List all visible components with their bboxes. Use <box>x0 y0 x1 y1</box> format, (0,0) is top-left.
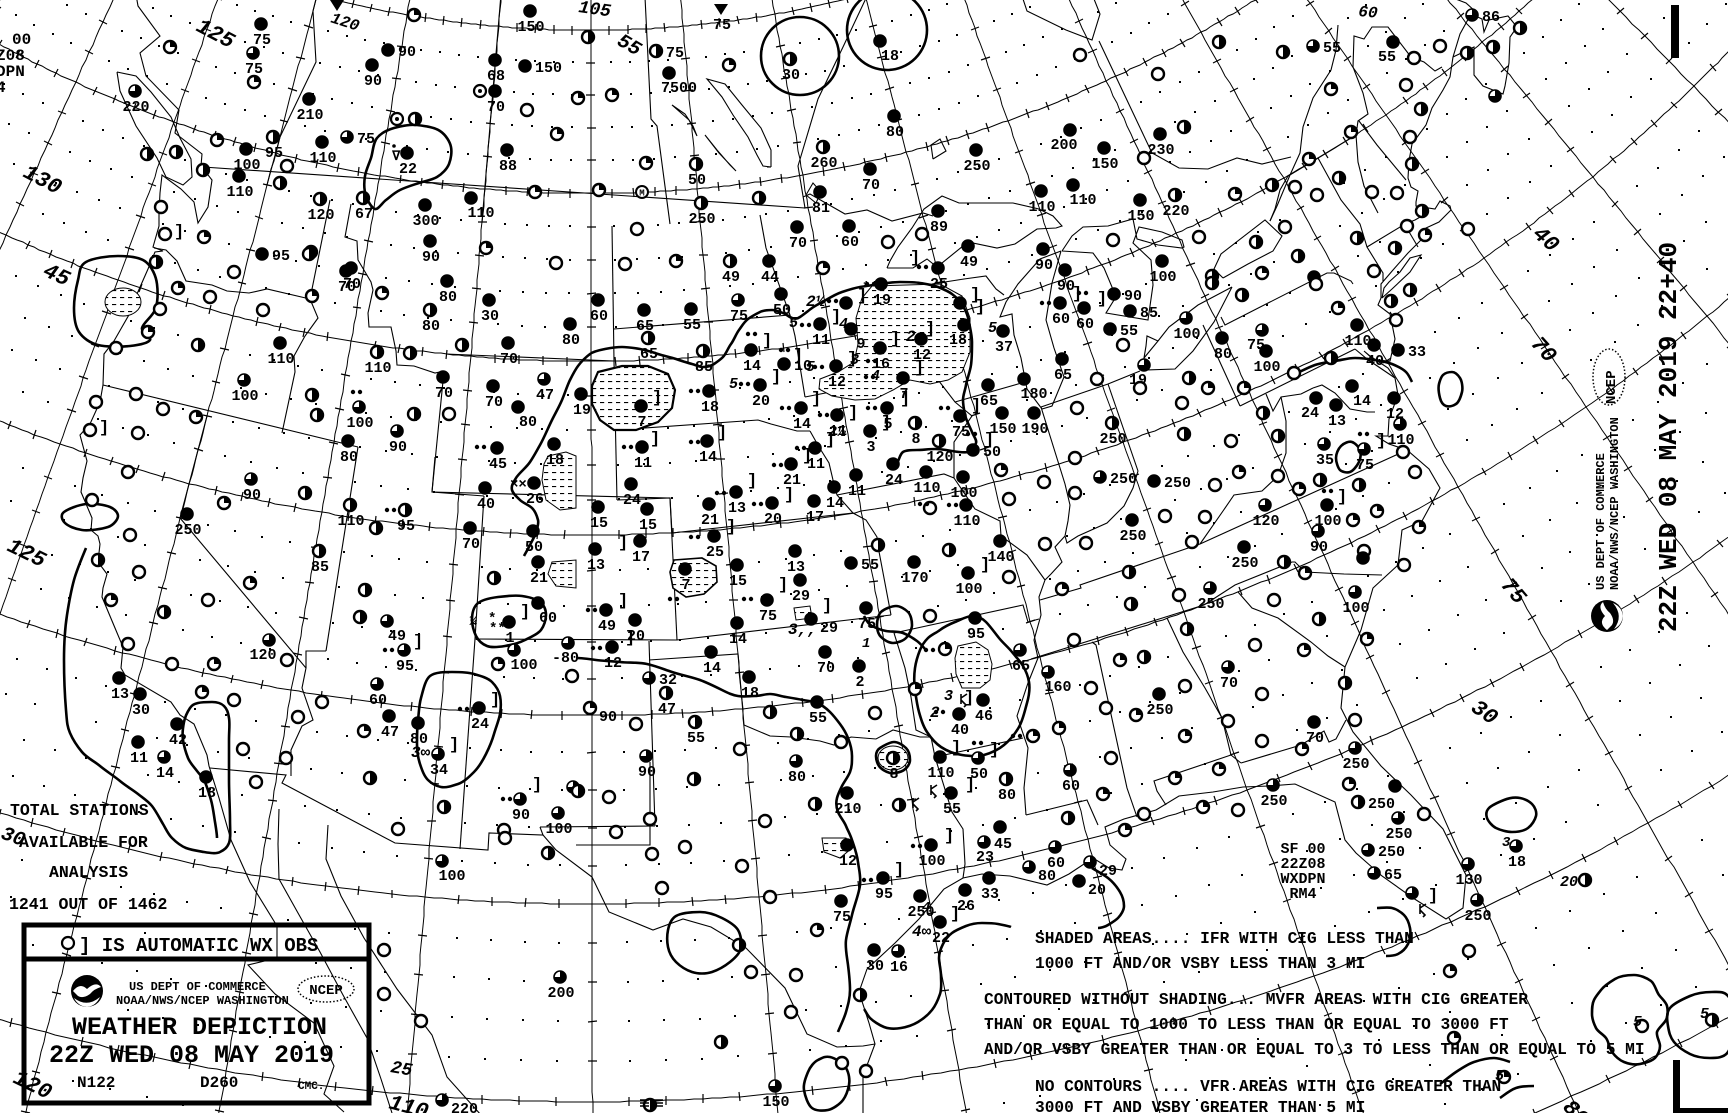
svg-text:90: 90 <box>243 487 261 504</box>
svg-text:]: ] <box>811 390 821 409</box>
svg-text:12: 12 <box>839 853 857 870</box>
svg-text:150: 150 <box>517 19 544 36</box>
svg-text:220: 220 <box>1162 203 1189 220</box>
svg-text:220: 220 <box>122 99 149 116</box>
svg-text:]: ] <box>174 223 184 242</box>
svg-text:]: ] <box>848 404 858 423</box>
svg-text:US DEPT OF COMMERCE: US DEPT OF COMMERCE <box>129 980 266 994</box>
svg-text:M: M <box>639 189 644 199</box>
svg-text:3∞: 3∞ <box>411 744 431 762</box>
svg-text:230: 230 <box>1147 142 1174 159</box>
svg-text:23: 23 <box>976 849 994 866</box>
svg-text:]: ] <box>822 597 832 616</box>
svg-text:60: 60 <box>841 234 859 251</box>
svg-text:20: 20 <box>752 393 770 410</box>
svg-text:]: ] <box>980 556 990 575</box>
svg-text:88: 88 <box>499 158 517 175</box>
svg-text:210: 210 <box>834 801 861 818</box>
svg-text:]: ] <box>975 298 985 317</box>
svg-text:14: 14 <box>793 416 811 433</box>
svg-text:55: 55 <box>683 317 701 334</box>
svg-text:24: 24 <box>471 716 489 733</box>
svg-text:220: 220 <box>451 1101 478 1113</box>
svg-text:2½: 2½ <box>828 424 846 441</box>
svg-text:44: 44 <box>761 269 779 286</box>
svg-text:250: 250 <box>963 158 990 175</box>
svg-text:86: 86 <box>1482 9 1500 26</box>
svg-text:49: 49 <box>722 269 740 286</box>
svg-text:100: 100 <box>950 485 977 502</box>
svg-text:]: ] <box>1072 285 1082 304</box>
svg-text:14: 14 <box>699 449 717 466</box>
svg-text:46: 46 <box>975 708 993 725</box>
svg-text:90: 90 <box>398 44 416 61</box>
svg-text:RM4: RM4 <box>1289 886 1316 903</box>
svg-text:**: ** <box>862 280 879 296</box>
svg-text:70: 70 <box>862 177 880 194</box>
svg-text:250: 250 <box>1197 596 1224 613</box>
svg-text:130: 130 <box>1455 872 1482 889</box>
svg-text:70: 70 <box>817 660 835 677</box>
svg-text:70: 70 <box>1306 730 1324 747</box>
svg-text:250: 250 <box>1099 431 1126 448</box>
svg-text:250: 250 <box>1368 796 1395 813</box>
svg-text:15: 15 <box>639 517 657 534</box>
svg-text:N122: N122 <box>77 1074 115 1092</box>
svg-text:14: 14 <box>743 358 761 375</box>
svg-text:15: 15 <box>590 515 608 532</box>
svg-text:CMC.: CMC. <box>298 1081 324 1093</box>
svg-text:]: ] <box>726 518 736 537</box>
svg-text:80: 80 <box>998 787 1016 804</box>
svg-text:14: 14 <box>156 765 174 782</box>
svg-text:]: ] <box>771 368 781 387</box>
svg-text:70: 70 <box>487 99 505 116</box>
svg-text:55: 55 <box>1120 323 1138 340</box>
svg-text:18: 18 <box>701 399 719 416</box>
svg-text:4: 4 <box>839 316 848 333</box>
svg-text:35: 35 <box>1316 452 1334 469</box>
svg-text:]: ] <box>762 332 772 351</box>
svg-text:14: 14 <box>729 631 747 648</box>
svg-text:13: 13 <box>787 559 805 576</box>
svg-text:110: 110 <box>1028 199 1055 216</box>
svg-text:20: 20 <box>764 511 782 528</box>
svg-text:60: 60 <box>369 692 387 709</box>
svg-text:110: 110 <box>1344 333 1371 350</box>
svg-text:22: 22 <box>932 930 950 947</box>
svg-text:95: 95 <box>272 248 290 265</box>
svg-text:9: 9 <box>856 336 865 353</box>
svg-text:NOAA/NWS/NCEP WASHINGTON: NOAA/NWS/NCEP WASHINGTON <box>116 994 289 1008</box>
svg-text:13: 13 <box>728 500 746 517</box>
svg-text:]: ] <box>965 776 975 795</box>
svg-text:19: 19 <box>573 402 591 419</box>
svg-text:]: ] <box>520 603 530 622</box>
svg-text:75: 75 <box>833 909 851 926</box>
svg-text:250: 250 <box>1385 826 1412 843</box>
svg-text:34: 34 <box>430 762 448 779</box>
svg-text:250: 250 <box>174 522 201 539</box>
svg-text:49: 49 <box>960 254 978 271</box>
svg-text:110: 110 <box>309 150 336 167</box>
svg-text:40: 40 <box>951 722 969 739</box>
svg-text:100: 100 <box>545 821 572 838</box>
svg-text:18: 18 <box>949 332 967 349</box>
svg-text:25: 25 <box>389 1058 414 1081</box>
svg-text:100: 100 <box>1342 600 1369 617</box>
svg-text:45: 45 <box>489 456 507 473</box>
svg-text:30: 30 <box>132 702 150 719</box>
svg-text:25: 25 <box>706 544 724 561</box>
svg-text:15: 15 <box>729 573 747 590</box>
svg-text:11: 11 <box>634 455 652 472</box>
svg-text:14: 14 <box>826 495 844 512</box>
svg-text:]: ] <box>650 430 660 449</box>
svg-text:1000 FT AND/OR VSBY LESS THAN: 1000 FT AND/OR VSBY LESS THAN 3 MI <box>1035 955 1365 973</box>
svg-text:250: 250 <box>1231 555 1258 572</box>
svg-text:80: 80 <box>422 318 440 335</box>
svg-text:95: 95 <box>875 886 893 903</box>
svg-text:47: 47 <box>381 724 399 741</box>
svg-text:37: 37 <box>995 339 1013 356</box>
svg-text:80: 80 <box>886 124 904 141</box>
svg-text:100: 100 <box>231 388 258 405</box>
svg-text:110: 110 <box>267 351 294 368</box>
svg-text:40: 40 <box>1366 353 1384 370</box>
svg-text:150: 150 <box>762 1094 789 1111</box>
svg-text:110: 110 <box>364 360 391 377</box>
svg-text:250: 250 <box>1164 475 1191 492</box>
svg-text:∇: ∇ <box>391 149 401 165</box>
svg-text:100: 100 <box>346 415 373 432</box>
svg-text:11: 11 <box>848 483 866 500</box>
svg-text:30: 30 <box>782 67 800 84</box>
svg-text:THAN OR EQUAL TO 1000 TO LESS: THAN OR EQUAL TO 1000 TO LESS THAN OR EQ… <box>984 1016 1509 1034</box>
svg-text:24: 24 <box>623 492 641 509</box>
svg-text:150: 150 <box>1091 156 1118 173</box>
svg-text:]: ] <box>1376 432 1386 451</box>
svg-text:2½: 2½ <box>806 293 826 311</box>
svg-text:]: ] <box>625 629 635 648</box>
svg-text:100: 100 <box>955 581 982 598</box>
svg-text:] IS AUTOMATIC WX OBS: ] IS AUTOMATIC WX OBS <box>79 935 318 957</box>
svg-text:68: 68 <box>487 68 505 85</box>
svg-text:120: 120 <box>249 647 276 664</box>
svg-text:]: ] <box>449 736 459 755</box>
svg-text:NO CONTOURS .... VFR AREAS WIT: NO CONTOURS .... VFR AREAS WITH CIG GREA… <box>1035 1078 1501 1096</box>
svg-text:4: 4 <box>0 79 6 97</box>
svg-text:49: 49 <box>598 618 616 635</box>
svg-text:7: 7 <box>681 577 690 594</box>
svg-text:TOTAL STATIONS: TOTAL STATIONS <box>10 801 149 820</box>
svg-text:110: 110 <box>226 184 253 201</box>
svg-text:40: 40 <box>477 496 495 513</box>
svg-text:20: 20 <box>1088 882 1106 899</box>
svg-text:]: ] <box>652 389 662 408</box>
svg-text:-80: -80 <box>552 650 579 667</box>
svg-text:110: 110 <box>467 205 494 222</box>
svg-text:250: 250 <box>1260 793 1287 810</box>
svg-text:4: 4 <box>922 900 930 916</box>
svg-text:29: 29 <box>820 620 838 637</box>
svg-text:260: 260 <box>810 155 837 172</box>
svg-text:75: 75 <box>858 616 876 633</box>
svg-text:17: 17 <box>632 549 650 566</box>
svg-text:16: 16 <box>890 959 908 976</box>
svg-text:NCEP: NCEP <box>1604 370 1620 404</box>
svg-text:11: 11 <box>812 332 830 349</box>
svg-text:××: ×× <box>510 477 527 493</box>
svg-text:47: 47 <box>658 701 676 718</box>
svg-text:24: 24 <box>885 472 903 489</box>
svg-text:100: 100 <box>438 868 465 885</box>
svg-text:90: 90 <box>364 73 382 90</box>
svg-text:]: ] <box>99 419 109 438</box>
svg-text:90: 90 <box>1124 288 1142 305</box>
svg-text:13: 13 <box>1328 413 1346 430</box>
svg-text:]: ] <box>944 827 954 846</box>
svg-text:90: 90 <box>422 249 440 266</box>
svg-text:60: 60 <box>1358 3 1379 23</box>
svg-text:81: 81 <box>812 200 830 217</box>
svg-text:]: ] <box>717 424 727 443</box>
svg-text:60: 60 <box>1062 778 1080 795</box>
svg-text:250: 250 <box>1342 756 1369 773</box>
svg-text:12: 12 <box>604 655 622 672</box>
svg-text:US DEPT OF COMMERCE: US DEPT OF COMMERCE <box>1594 453 1608 590</box>
svg-text:100: 100 <box>510 657 537 674</box>
svg-text:55: 55 <box>1323 40 1341 57</box>
svg-text:55: 55 <box>687 730 705 747</box>
svg-text:85: 85 <box>311 559 329 576</box>
svg-text:65: 65 <box>1054 367 1072 384</box>
svg-text:90: 90 <box>512 807 530 824</box>
svg-text:50: 50 <box>688 172 706 189</box>
svg-text:33: 33 <box>1408 344 1426 361</box>
svg-text:ANALYSIS: ANALYSIS <box>49 863 128 882</box>
svg-text:22Z WED 08 MAY 2019: 22Z WED 08 MAY 2019 <box>49 1041 334 1070</box>
svg-text:190: 190 <box>1021 421 1048 438</box>
svg-text:WEATHER DEPICTION: WEATHER DEPICTION <box>72 1013 327 1042</box>
svg-text:CONTOURED WITHOUT SHADING... M: CONTOURED WITHOUT SHADING... MVFR AREAS … <box>984 991 1528 1009</box>
svg-text:AVAILABLE FOR: AVAILABLE FOR <box>19 833 148 852</box>
svg-text:120: 120 <box>1252 513 1279 530</box>
svg-text:90: 90 <box>1035 257 1053 274</box>
svg-text:95: 95 <box>265 145 283 162</box>
svg-text:250: 250 <box>1378 844 1405 861</box>
svg-text:90: 90 <box>1310 539 1328 556</box>
svg-text:12: 12 <box>828 374 846 391</box>
svg-text:150: 150 <box>1127 208 1154 225</box>
svg-text:110: 110 <box>337 513 364 530</box>
svg-text:22: 22 <box>399 161 417 178</box>
svg-text:]: ] <box>747 472 757 491</box>
svg-text:80: 80 <box>788 769 806 786</box>
svg-text:3,,: 3,, <box>788 621 817 639</box>
svg-text:33: 33 <box>981 886 999 903</box>
svg-text:14: 14 <box>703 660 721 677</box>
svg-text:30: 30 <box>866 958 884 975</box>
svg-text:210: 210 <box>296 107 323 124</box>
svg-text:11: 11 <box>130 750 148 767</box>
svg-text:55: 55 <box>943 801 961 818</box>
svg-text:250: 250 <box>907 904 934 921</box>
svg-text:75: 75 <box>666 45 684 62</box>
svg-text:160: 160 <box>1044 679 1071 696</box>
svg-text:]: ] <box>900 390 910 409</box>
svg-text:21: 21 <box>701 512 719 529</box>
svg-text:AND/OR VSBY GREATER THAN OR EQ: AND/OR VSBY GREATER THAN OR EQUAL TO 3 T… <box>984 1041 1645 1059</box>
svg-text:NCEP: NCEP <box>309 983 343 999</box>
svg-text:17: 17 <box>806 509 824 526</box>
svg-text:]: ] <box>1428 887 1438 906</box>
svg-text:60: 60 <box>539 610 557 627</box>
svg-text:100: 100 <box>1149 269 1176 286</box>
svg-text:]: ] <box>1097 290 1107 309</box>
svg-text:75: 75 <box>1356 457 1374 474</box>
svg-text:95: 95 <box>396 658 414 675</box>
svg-text:180: 180 <box>1020 386 1047 403</box>
svg-text:80: 80 <box>1214 346 1232 363</box>
svg-text:250: 250 <box>1119 528 1146 545</box>
svg-text:]: ] <box>989 741 999 760</box>
svg-text:]: ] <box>1337 488 1347 507</box>
svg-text:5: 5 <box>729 376 738 393</box>
svg-text:80: 80 <box>439 289 457 306</box>
svg-text:75: 75 <box>713 17 731 34</box>
svg-text:55: 55 <box>1378 49 1396 66</box>
svg-text:80: 80 <box>1038 868 1056 885</box>
svg-text:18: 18 <box>198 785 216 802</box>
svg-text:100: 100 <box>1173 326 1200 343</box>
svg-text:3: 3 <box>1502 835 1511 851</box>
svg-text:70: 70 <box>500 351 518 368</box>
svg-text:13: 13 <box>111 686 129 703</box>
svg-text:42: 42 <box>169 732 187 749</box>
svg-text:90: 90 <box>599 709 617 726</box>
svg-text:13: 13 <box>587 557 605 574</box>
svg-text:20: 20 <box>1560 874 1578 891</box>
svg-text:70: 70 <box>435 385 453 402</box>
svg-text:29: 29 <box>1099 863 1117 880</box>
svg-text:29: 29 <box>792 588 810 605</box>
svg-text:70: 70 <box>343 276 361 293</box>
svg-text:65: 65 <box>1012 658 1030 675</box>
svg-text:70: 70 <box>462 536 480 553</box>
svg-text:2: 2 <box>930 704 940 722</box>
svg-text:30: 30 <box>481 308 499 325</box>
svg-text:250: 250 <box>1110 471 1137 488</box>
svg-text:50: 50 <box>525 539 543 556</box>
svg-text:5: 5 <box>988 320 997 337</box>
svg-text:¼: ¼ <box>469 614 478 630</box>
svg-text:]: ] <box>618 534 628 553</box>
svg-text:89: 89 <box>930 219 948 236</box>
svg-text:90: 90 <box>638 764 656 781</box>
svg-text:5: 5 <box>1700 1006 1709 1023</box>
svg-text:25: 25 <box>930 276 948 293</box>
svg-text:45: 45 <box>994 836 1012 853</box>
svg-text:7: 7 <box>637 414 646 431</box>
svg-text:80: 80 <box>562 332 580 349</box>
svg-text:200: 200 <box>547 985 574 1002</box>
svg-text:90: 90 <box>389 439 407 456</box>
svg-text:67: 67 <box>355 206 373 223</box>
svg-text:1241 OUT OF 1462: 1241 OUT OF 1462 <box>9 895 167 914</box>
svg-text:18: 18 <box>881 48 899 65</box>
svg-text:250: 250 <box>1146 702 1173 719</box>
svg-text:]: ] <box>778 576 788 595</box>
svg-text:70: 70 <box>789 235 807 252</box>
svg-text:18: 18 <box>741 685 759 702</box>
svg-text:*: * <box>488 611 496 627</box>
svg-text:4: 4 <box>871 368 880 385</box>
svg-text:18: 18 <box>546 452 564 469</box>
svg-text:55: 55 <box>861 557 879 574</box>
svg-text:]: ] <box>971 397 981 416</box>
svg-text:3: 3 <box>944 688 953 705</box>
svg-text:SHADED AREAS.... IFR WITH CIG: SHADED AREAS.... IFR WITH CIG LESS THAN <box>1035 930 1414 948</box>
svg-text:150: 150 <box>535 60 562 77</box>
svg-text:60: 60 <box>1076 316 1094 333</box>
svg-text:3000 FT AND VSBY GREATER THAN: 3000 FT AND VSBY GREATER THAN 5 MI <box>1035 1099 1365 1113</box>
svg-text:85: 85 <box>695 359 713 376</box>
svg-text:75: 75 <box>730 308 748 325</box>
svg-text:]: ] <box>532 776 542 795</box>
svg-text:8: 8 <box>911 431 920 448</box>
svg-text:49: 49 <box>388 628 406 645</box>
svg-text:80: 80 <box>340 449 358 466</box>
svg-text:80: 80 <box>519 414 537 431</box>
svg-text:]: ] <box>784 486 794 505</box>
svg-text:3: 3 <box>850 352 859 369</box>
svg-text:18: 18 <box>1508 854 1526 871</box>
svg-text:21: 21 <box>530 570 548 587</box>
svg-text:]: ] <box>914 359 924 378</box>
svg-text:14: 14 <box>1353 393 1371 410</box>
svg-text:200: 200 <box>1050 137 1077 154</box>
svg-text:7500: 7500 <box>661 80 697 97</box>
svg-text:300: 300 <box>412 213 439 230</box>
svg-text:250: 250 <box>688 211 715 228</box>
svg-text:]: ] <box>894 861 904 880</box>
svg-text:26: 26 <box>526 491 544 508</box>
svg-text:]: ] <box>951 739 961 758</box>
svg-text:95: 95 <box>397 518 415 535</box>
svg-text:]: ] <box>490 691 500 710</box>
svg-text:70: 70 <box>485 394 503 411</box>
svg-text:22Z WED 08 MAY 2019 22+40: 22Z WED 08 MAY 2019 22+40 <box>1654 242 1684 632</box>
svg-text:]: ] <box>618 592 628 611</box>
svg-text:100: 100 <box>1253 359 1280 376</box>
svg-text:170: 170 <box>901 570 928 587</box>
svg-text:110: 110 <box>953 513 980 530</box>
svg-text:NOAA/NWS/NCEP WASHINGTON: NOAA/NWS/NCEP WASHINGTON <box>1608 417 1622 590</box>
svg-text:110: 110 <box>1069 192 1096 209</box>
svg-text:75: 75 <box>759 608 777 625</box>
svg-text:110: 110 <box>927 765 954 782</box>
svg-text:75: 75 <box>253 32 271 49</box>
svg-text:2: 2 <box>906 328 916 346</box>
svg-text:5: 5 <box>806 359 815 376</box>
svg-text:60: 60 <box>1052 311 1070 328</box>
svg-text:65: 65 <box>1384 867 1402 884</box>
svg-text:]: ] <box>881 414 891 433</box>
svg-text:4∞: 4∞ <box>912 923 932 941</box>
svg-text:D260: D260 <box>200 1074 238 1092</box>
svg-text:24: 24 <box>1301 405 1319 422</box>
